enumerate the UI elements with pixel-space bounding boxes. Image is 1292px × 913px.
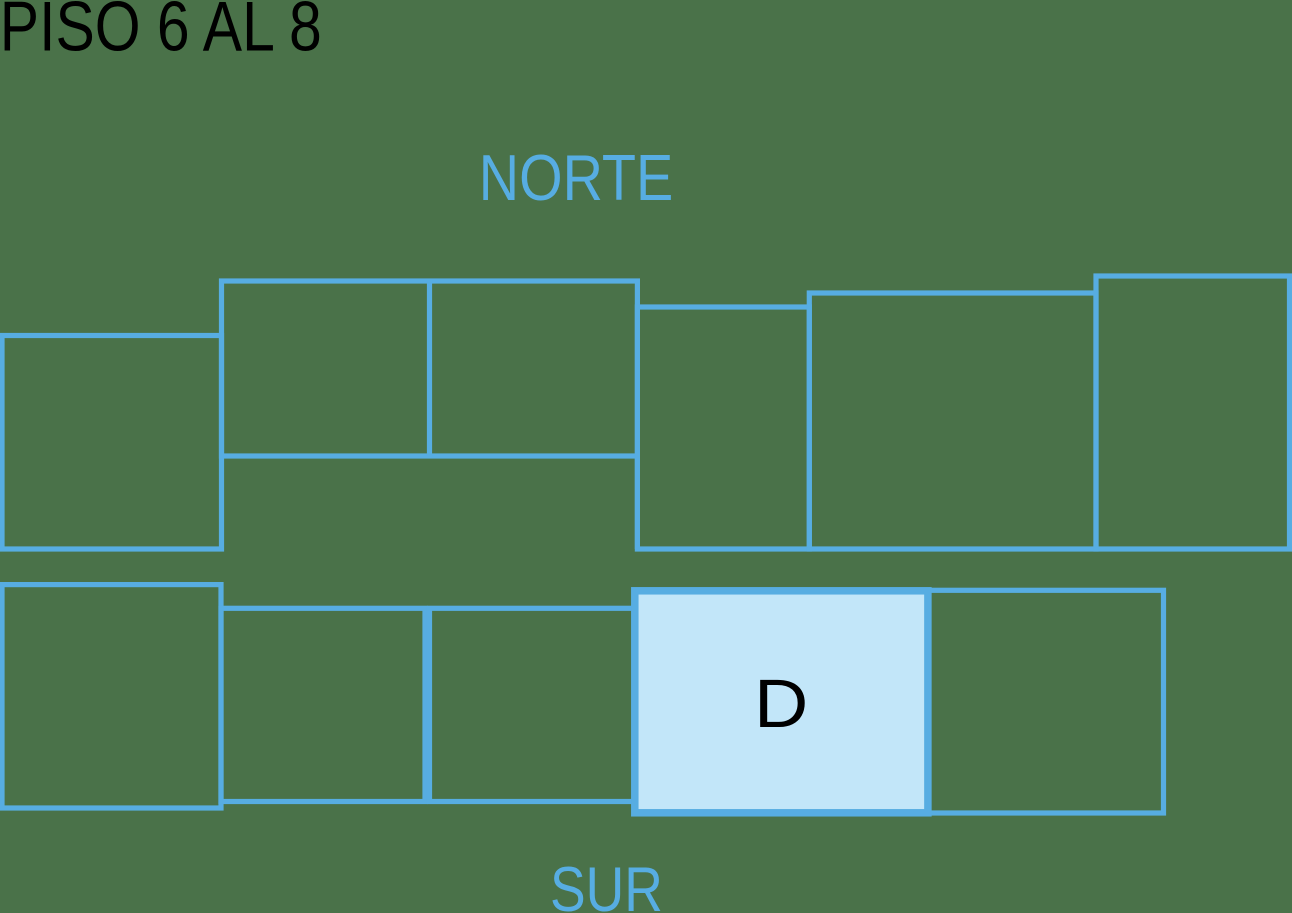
svg-text:SUR: SUR xyxy=(550,855,663,913)
svg-text:PISO 6 AL 8: PISO 6 AL 8 xyxy=(0,0,322,65)
svg-text:D: D xyxy=(754,666,808,742)
svg-text:NORTE: NORTE xyxy=(479,141,673,214)
